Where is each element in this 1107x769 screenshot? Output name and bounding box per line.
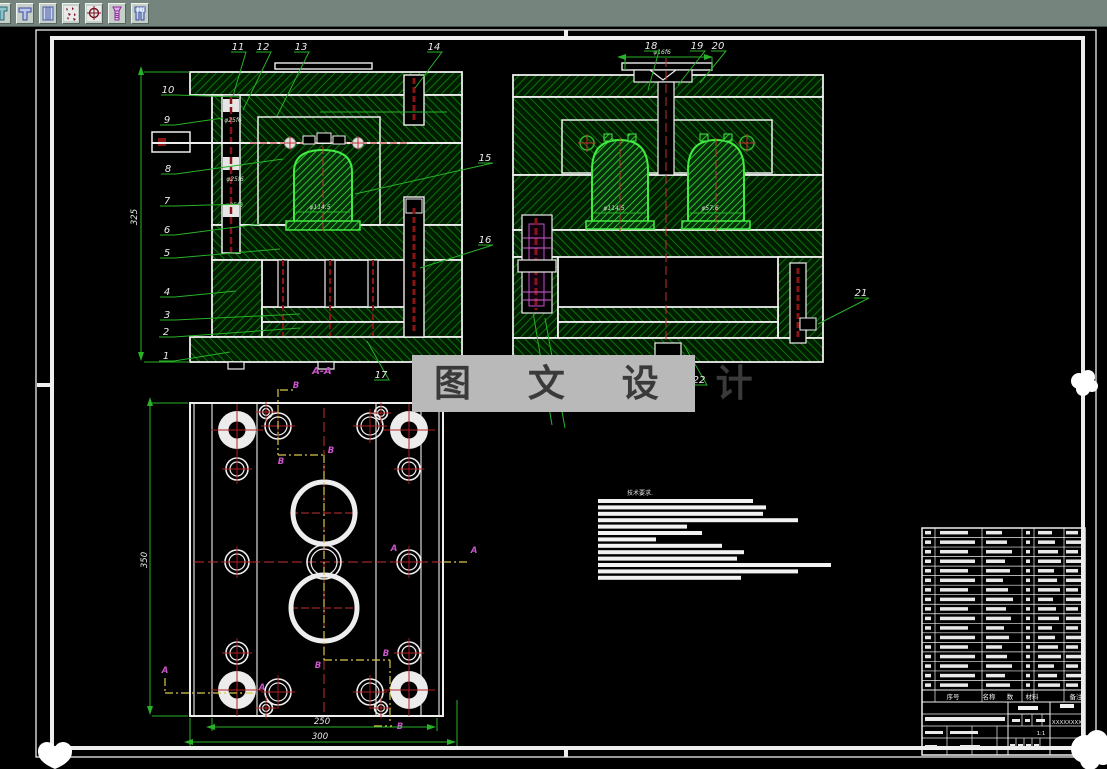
redacted-text-line <box>598 512 763 516</box>
cell-smudge <box>986 674 1005 678</box>
cell-smudge <box>1026 744 1031 747</box>
plate <box>558 307 778 322</box>
callout-number: 15 <box>479 153 492 164</box>
cell-smudge <box>986 626 1004 630</box>
cell-smudge <box>986 531 1002 535</box>
cell-smudge <box>940 645 968 649</box>
cell-smudge <box>1066 588 1078 592</box>
callout-number: 21 <box>855 288 868 299</box>
plate <box>262 322 412 338</box>
runner-insert <box>333 136 345 144</box>
cell-smudge <box>1026 540 1030 544</box>
cell-smudge <box>1026 626 1030 630</box>
cell-smudge <box>1066 550 1078 554</box>
height-dim: 325 <box>130 209 140 225</box>
redacted-text-line <box>598 505 766 509</box>
plate <box>212 260 262 337</box>
foot <box>228 362 244 369</box>
cell-smudge <box>960 745 980 748</box>
cell-smudge <box>1066 655 1082 659</box>
cell-smudge <box>1026 674 1030 678</box>
cell-smudge <box>1038 664 1054 668</box>
cell-smudge <box>940 569 968 573</box>
cell-smudge <box>986 588 1008 592</box>
redacted-text-line <box>598 544 722 548</box>
cell-smudge <box>1038 645 1058 649</box>
tech-requirements-title: 技术要求. <box>627 489 653 497</box>
cell-smudge <box>1066 645 1078 649</box>
cell-smudge <box>1026 579 1030 583</box>
callout-number: 11 <box>232 42 245 53</box>
cell-smudge <box>986 664 1012 668</box>
cell-smudge <box>925 540 931 544</box>
runner-insert <box>317 133 331 143</box>
cell-smudge <box>986 550 1012 554</box>
cell-smudge <box>1038 655 1061 659</box>
cell-smudge <box>1026 598 1030 602</box>
cell-smudge <box>925 664 931 668</box>
ejector-flange <box>518 260 556 272</box>
section-letter: B <box>293 381 299 391</box>
bom-header-cell: 数 <box>1007 692 1014 701</box>
leader-line <box>818 298 869 324</box>
section-letter: B <box>278 457 284 467</box>
section-letter: A <box>161 666 169 676</box>
bom-header-cell: 序号 <box>947 692 961 701</box>
cell-smudge <box>925 569 931 573</box>
cell-smudge <box>925 717 1005 721</box>
section-letter: B <box>383 649 389 659</box>
redacted-text-line <box>598 537 656 541</box>
section-letter: A <box>470 546 478 556</box>
screw-part <box>800 318 816 330</box>
cell-smudge <box>925 559 931 563</box>
cell-smudge <box>1066 626 1078 630</box>
stepped-part-icon[interactable] <box>0 3 11 24</box>
locating-ring <box>622 63 712 70</box>
callout-number: 16 <box>479 235 492 246</box>
top-rail <box>275 63 372 69</box>
redacted-text-line <box>598 525 687 529</box>
cell-smudge <box>1066 664 1078 668</box>
screw-icon[interactable] <box>108 3 126 24</box>
dome-bump <box>604 134 612 141</box>
cell-smudge <box>940 598 975 602</box>
cell-smudge <box>1026 531 1030 535</box>
cell-smudge <box>986 683 1010 687</box>
redacted-text-line <box>598 557 737 561</box>
cell-smudge <box>950 731 978 734</box>
cell-smudge <box>940 636 975 640</box>
redacted-text-line <box>598 518 798 522</box>
cell-smudge <box>1010 744 1015 747</box>
cell-smudge <box>1026 655 1030 659</box>
section-letter: A <box>390 544 398 554</box>
watermark: 图 文 设 计 <box>412 355 695 412</box>
cell-smudge <box>940 674 975 678</box>
cell-smudge <box>1066 607 1078 611</box>
cell-smudge <box>940 550 968 554</box>
crosshair-target-icon[interactable] <box>85 3 103 24</box>
cell-smudge <box>986 655 1007 659</box>
cell-smudge <box>1038 626 1052 630</box>
plan-outer-dim: 300 <box>312 732 328 742</box>
callout-number: 2 <box>163 327 169 338</box>
cell-smudge <box>1066 636 1082 640</box>
cell-smudge <box>925 745 937 748</box>
cell-smudge <box>925 626 931 630</box>
bushing-icon[interactable] <box>39 3 57 24</box>
cell-smudge <box>925 588 931 592</box>
cell-smudge <box>940 626 968 630</box>
section-view-aa: φ114.5φ25f6φ25f6φ25f6325A-A <box>130 63 462 377</box>
cell-smudge <box>986 617 1011 621</box>
plate <box>513 175 823 230</box>
cell-smudge <box>925 636 931 640</box>
section-letter: B <box>328 446 334 456</box>
cell-smudge <box>940 607 968 611</box>
cell-smudge <box>1066 540 1082 544</box>
cell-smudge <box>1066 531 1078 535</box>
cell-smudge <box>1026 664 1030 668</box>
section-letter: B <box>315 661 321 671</box>
app-toolbar <box>0 0 1107 27</box>
spatter-pattern-icon[interactable] <box>62 3 80 24</box>
plate <box>558 322 778 338</box>
callout-number: 7 <box>164 196 171 207</box>
cell-smudge <box>986 636 1009 640</box>
cell-smudge <box>1018 744 1023 747</box>
runner-insert <box>303 136 315 144</box>
drawing-number: XXXXXXXX <box>1052 720 1082 726</box>
cell-smudge <box>1038 540 1055 544</box>
cell-smudge <box>940 531 968 535</box>
cell-smudge <box>1038 674 1057 678</box>
callout-number: 5 <box>164 248 170 259</box>
callout-number: 12 <box>257 42 270 53</box>
cell-smudge <box>925 531 931 535</box>
t-slot-part-icon[interactable] <box>16 3 34 24</box>
cell-smudge <box>1026 550 1030 554</box>
cell-smudge <box>1038 559 1061 563</box>
cavity-dim: φ57.6 <box>701 205 719 212</box>
cell-smudge <box>1066 598 1082 602</box>
plan-view: BBBBBBAAAA350250300 <box>140 381 477 746</box>
bom-header-cell: 材料 <box>1026 692 1040 701</box>
cell-smudge <box>925 550 931 554</box>
cavity-dim: φ114.5 <box>603 205 624 212</box>
cell-smudge <box>925 645 931 649</box>
cell-smudge <box>940 617 975 621</box>
redacted-title <box>1060 704 1074 708</box>
cell-smudge <box>1066 569 1078 573</box>
callout-number: 17 <box>375 370 388 381</box>
cavity-dim: φ114.5 <box>309 204 330 211</box>
cell-smudge <box>1038 636 1055 640</box>
cell-smudge <box>1026 559 1030 563</box>
cell-smudge <box>986 598 1013 602</box>
cell-smudge <box>986 579 1003 583</box>
cell-smudge <box>925 607 931 611</box>
redacted-text-line <box>598 550 744 554</box>
cell-smudge <box>1026 636 1030 640</box>
cell-smudge <box>940 540 975 544</box>
callout-number: 13 <box>295 42 308 53</box>
cell-smudge <box>940 664 968 668</box>
cell-smudge <box>1066 579 1082 583</box>
cell-smudge <box>1012 719 1020 722</box>
dome-bump <box>628 134 636 141</box>
cell-smudge <box>940 588 968 592</box>
callout-number: 4 <box>164 287 170 298</box>
plan-height-dim: 350 <box>140 552 150 568</box>
cell-smudge <box>1038 569 1054 573</box>
cell-smudge <box>986 607 1006 611</box>
bom-header-cell: 名称 <box>983 692 997 701</box>
striped-part-icon[interactable] <box>131 3 149 24</box>
cell-smudge <box>940 655 975 659</box>
cell-smudge <box>940 683 968 687</box>
redacted-text-line <box>598 531 702 535</box>
pin-dim: φ25f6 <box>224 117 242 124</box>
cell-smudge <box>1038 598 1053 602</box>
callout-number: 9 <box>164 115 170 126</box>
cell-smudge <box>1038 579 1057 583</box>
cell-smudge <box>1026 607 1030 611</box>
callout-number: 20 <box>712 41 725 52</box>
cell-smudge <box>1038 683 1060 687</box>
cell-smudge <box>925 598 931 602</box>
callout-number: 18 <box>645 41 658 52</box>
tech-requirements: 技术要求. <box>598 489 831 580</box>
cell-smudge <box>1066 674 1082 678</box>
cell-smudge <box>925 731 943 734</box>
callout-number: 1 <box>163 351 169 362</box>
cell-smudge <box>1066 683 1078 687</box>
cell-smudge <box>940 579 975 583</box>
cell-smudge <box>1036 719 1045 722</box>
cell-smudge <box>1038 588 1060 592</box>
redacted-title <box>1018 706 1038 710</box>
cell-smudge <box>986 645 1002 649</box>
bom-header-cell: 备注 <box>1070 692 1084 701</box>
redacted-text-line <box>598 563 831 567</box>
cell-smudge <box>1025 719 1030 722</box>
plate <box>513 230 823 257</box>
dome-bump <box>724 134 732 141</box>
pin-dim: φ25f6 <box>225 202 243 209</box>
section-letter: A <box>258 683 266 693</box>
cell-smudge <box>925 674 931 678</box>
cell-smudge <box>1026 588 1030 592</box>
cell-smudge <box>1038 607 1056 611</box>
cell-smudge <box>1026 645 1030 649</box>
cell-smudge <box>1026 617 1030 621</box>
cell-smudge <box>1038 617 1059 621</box>
drawing-scale: 1:1 <box>1037 731 1046 737</box>
redacted-text-line <box>598 576 741 580</box>
cell-smudge <box>1066 559 1082 563</box>
cell-smudge <box>986 540 1007 544</box>
pin-dim: φ25f6 <box>226 176 244 183</box>
redacted-text-line <box>598 569 798 573</box>
cell-smudge <box>986 559 1005 563</box>
cell-smudge <box>1026 683 1030 687</box>
cell-smudge <box>1034 744 1039 747</box>
callout-number: 3 <box>164 310 170 321</box>
redacted-text-line <box>598 499 753 503</box>
cell-smudge <box>925 617 931 621</box>
cell-smudge <box>925 579 931 583</box>
cell-smudge <box>925 655 931 659</box>
callout-number: 19 <box>691 41 704 52</box>
cell-smudge <box>986 569 1010 573</box>
callout-number: 6 <box>164 225 170 236</box>
cell-smudge <box>940 559 975 563</box>
plan-inner-dim: 250 <box>314 717 330 727</box>
dome-bump <box>700 134 708 141</box>
blob <box>1076 382 1090 396</box>
section-label-aa: A-A <box>311 366 332 377</box>
cell-smudge <box>1038 531 1052 535</box>
cell-smudge <box>1038 550 1058 554</box>
cell-smudge <box>925 683 931 687</box>
callout-number: 10 <box>162 85 175 96</box>
cell-smudge <box>1066 617 1082 621</box>
callout-number: 14 <box>428 42 441 53</box>
callout-number: 8 <box>165 164 171 175</box>
cell-smudge <box>1026 569 1030 573</box>
